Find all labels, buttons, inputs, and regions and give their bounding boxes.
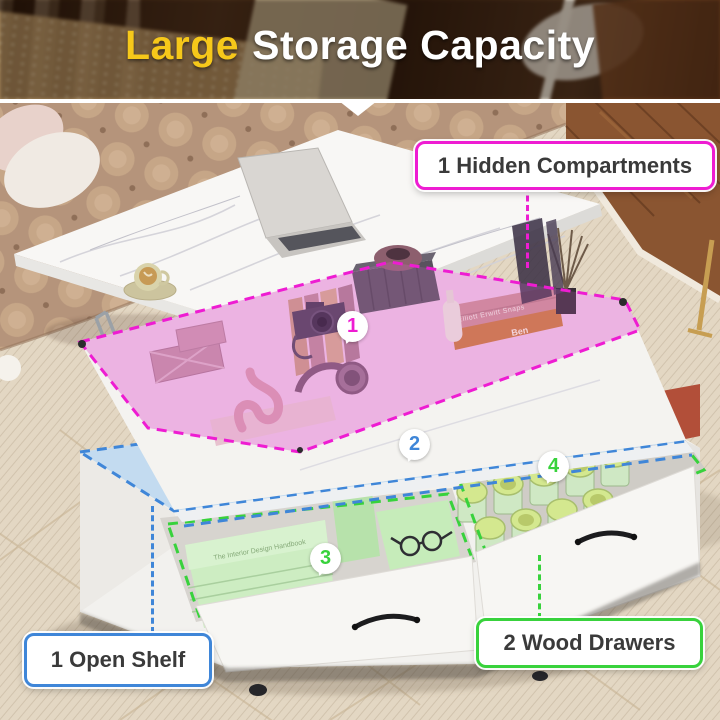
banner-title-highlight: Large xyxy=(125,22,239,69)
label-hidden-compartments-text: 1 Hidden Compartments xyxy=(438,153,692,179)
badge-open-shelf: 2 xyxy=(399,429,430,460)
connector-wood-drawers xyxy=(538,555,541,619)
banner-title-rest: Storage Capacity xyxy=(252,22,595,69)
connector-open-shelf xyxy=(151,506,154,633)
banner: Large Storage Capacity xyxy=(0,0,720,103)
banner-title: Large Storage Capacity xyxy=(0,22,720,69)
connector-hidden-compartments xyxy=(526,186,529,268)
badge-drawer-left: 3 xyxy=(310,543,341,574)
label-wood-drawers: 2 Wood Drawers xyxy=(476,618,703,668)
label-wood-drawers-text: 2 Wood Drawers xyxy=(504,630,676,656)
label-open-shelf-text: 1 Open Shelf xyxy=(51,647,185,673)
product-infographic: The Interior Design Handbook xyxy=(0,0,720,720)
badge-hidden-compartment: 1 xyxy=(337,311,368,342)
banner-notch xyxy=(339,101,377,116)
label-hidden-compartments: 1 Hidden Compartments xyxy=(415,141,715,190)
badge-drawer-right: 4 xyxy=(538,451,569,482)
label-open-shelf: 1 Open Shelf xyxy=(24,633,212,687)
